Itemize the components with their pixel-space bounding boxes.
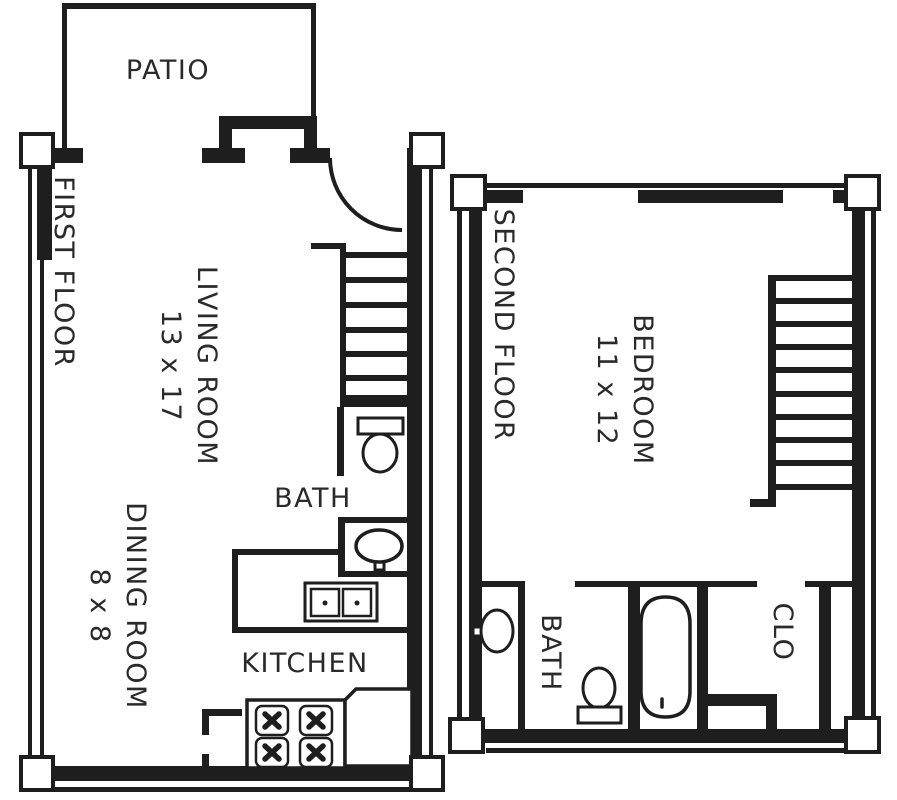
bath-first-floor-label: BATH: [274, 481, 352, 517]
entry-door-arc: [330, 158, 402, 230]
bathtub-fixture: [641, 597, 690, 717]
living-room-dims: 13 x 17: [152, 266, 188, 466]
floor-plan: PATIO FIRST FLOOR LIVING ROOM 13 x 17 DI…: [0, 0, 897, 800]
stove-fixture: [247, 700, 345, 768]
dining-room-name: DINING ROOM: [117, 502, 153, 710]
patio-label: PATIO: [126, 53, 210, 89]
kitchen-label: KITCHEN: [241, 646, 369, 682]
dining-room-label: DINING ROOM 8 x 8: [81, 502, 153, 710]
closet-label: CLO: [764, 603, 800, 662]
living-room-label: LIVING ROOM 13 x 17: [152, 266, 224, 466]
toilet-fixture-second-floor: [578, 668, 621, 723]
staircase-first-floor: [311, 243, 407, 403]
bath-second-floor-label: BATH: [532, 614, 568, 692]
bedroom-label: BEDROOM 11 x 12: [588, 314, 660, 465]
bedroom-dims: 11 x 12: [588, 314, 624, 465]
kitchen-sink-fixture: [305, 583, 377, 621]
second-floor-label: SECOND FLOOR: [485, 209, 521, 442]
living-room-name: LIVING ROOM: [188, 266, 224, 466]
kitchen-entry-wall-stub: [202, 709, 242, 767]
first-floor-label: FIRST FLOOR: [45, 176, 81, 368]
dining-room-dims: 8 x 8: [81, 502, 117, 710]
staircase-second-floor: [750, 275, 852, 507]
refrigerator-counter: [345, 689, 412, 766]
bath-sink-fixture-first-floor: [356, 530, 402, 570]
bedroom-name: BEDROOM: [624, 314, 660, 465]
toilet-fixture-first-floor: [358, 418, 403, 472]
